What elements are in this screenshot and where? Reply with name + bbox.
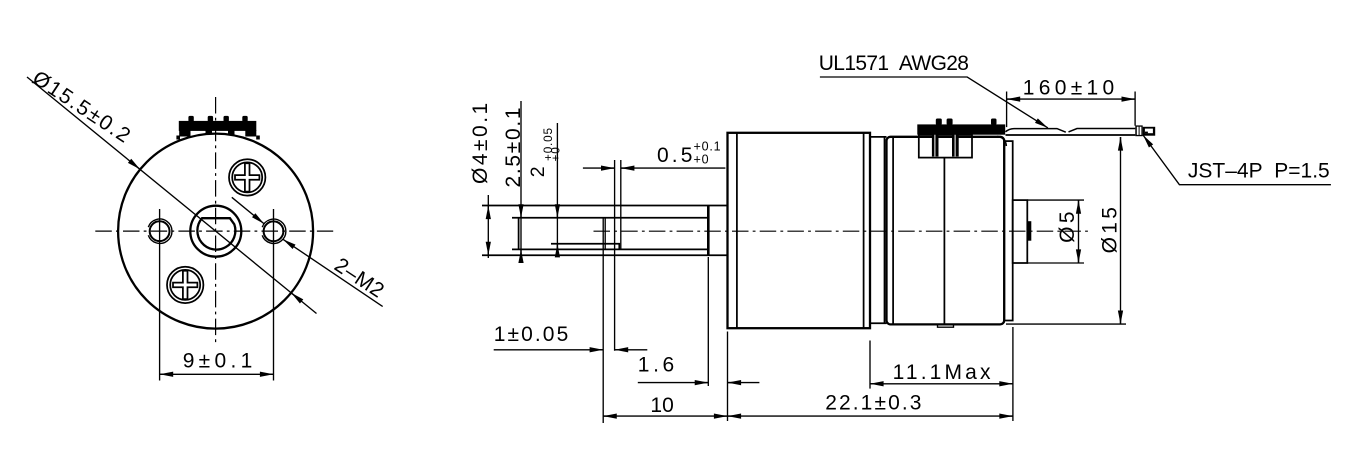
svg-text:1.6: 1.6 bbox=[638, 354, 678, 377]
svg-text:Ø15: Ø15 bbox=[1099, 204, 1122, 254]
svg-text:+0: +0 bbox=[548, 146, 562, 161]
svg-text:JST–4P P=1.5: JST–4P P=1.5 bbox=[1188, 159, 1330, 182]
svg-text:0.5: 0.5 bbox=[657, 144, 696, 167]
svg-text:10: 10 bbox=[650, 394, 673, 417]
svg-text:1±0.05: 1±0.05 bbox=[494, 323, 571, 346]
svg-text:9±0.1: 9±0.1 bbox=[183, 350, 257, 373]
svg-text:Ø4±0.1: Ø4±0.1 bbox=[469, 100, 492, 184]
svg-text:Ø5: Ø5 bbox=[1056, 208, 1079, 243]
svg-text:Ø15.5±0.2: Ø15.5±0.2 bbox=[28, 66, 135, 148]
svg-text:2: 2 bbox=[527, 166, 549, 177]
svg-text:+0: +0 bbox=[694, 153, 710, 167]
svg-text:+0.1: +0.1 bbox=[694, 139, 722, 153]
svg-text:160±10: 160±10 bbox=[1023, 77, 1119, 100]
svg-text:22.1±0.3: 22.1±0.3 bbox=[825, 392, 923, 415]
svg-text:11.1Max: 11.1Max bbox=[893, 361, 994, 384]
svg-text:UL1571 AWG28: UL1571 AWG28 bbox=[819, 52, 969, 75]
svg-text:2.5±0.1: 2.5±0.1 bbox=[502, 106, 525, 188]
svg-text:2–M2: 2–M2 bbox=[330, 253, 388, 302]
